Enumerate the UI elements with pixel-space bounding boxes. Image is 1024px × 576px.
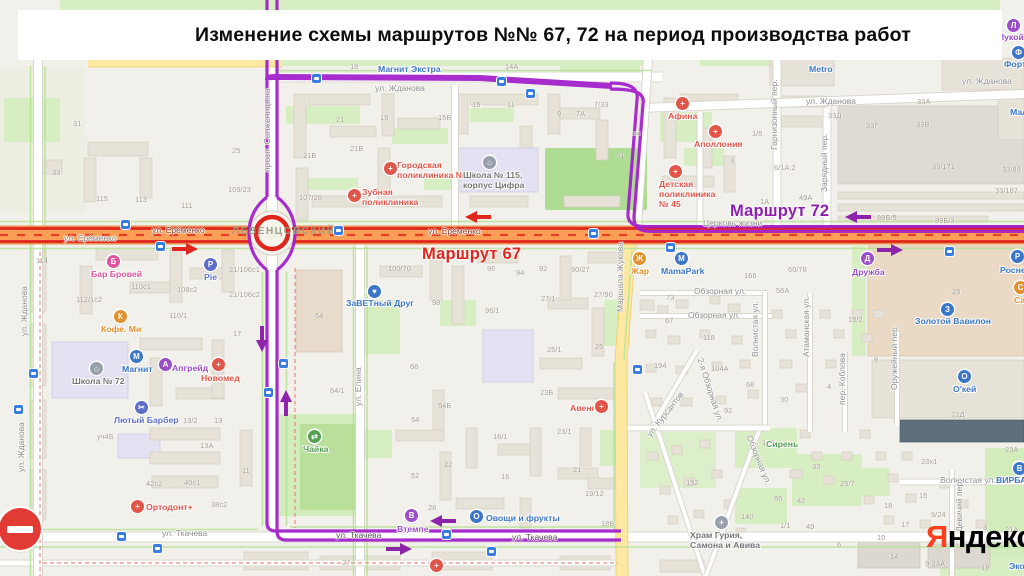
- yandex-logo-rest: ндекс: [948, 519, 1024, 554]
- page-title: Изменение схемы маршрутов №№ 67, 72 на п…: [109, 24, 911, 47]
- map-poster: ЛЕВЕНЦОВСКИЙ просп. Солженицынаул. Ждано…: [0, 0, 1024, 576]
- yandex-logo: Яндекс: [926, 519, 1024, 555]
- route-72-label: Маршрут 72: [730, 202, 829, 221]
- yandex-logo-accent: Я: [926, 519, 948, 554]
- route-67-label: Маршрут 67: [422, 245, 521, 264]
- title-banner: Изменение схемы маршрутов №№ 67, 72 на п…: [18, 10, 1002, 60]
- district-label: ЛЕВЕНЦОВСКИЙ: [232, 226, 336, 237]
- map-canvas[interactable]: [0, 0, 1024, 576]
- no-entry-sign-icon: [0, 508, 41, 550]
